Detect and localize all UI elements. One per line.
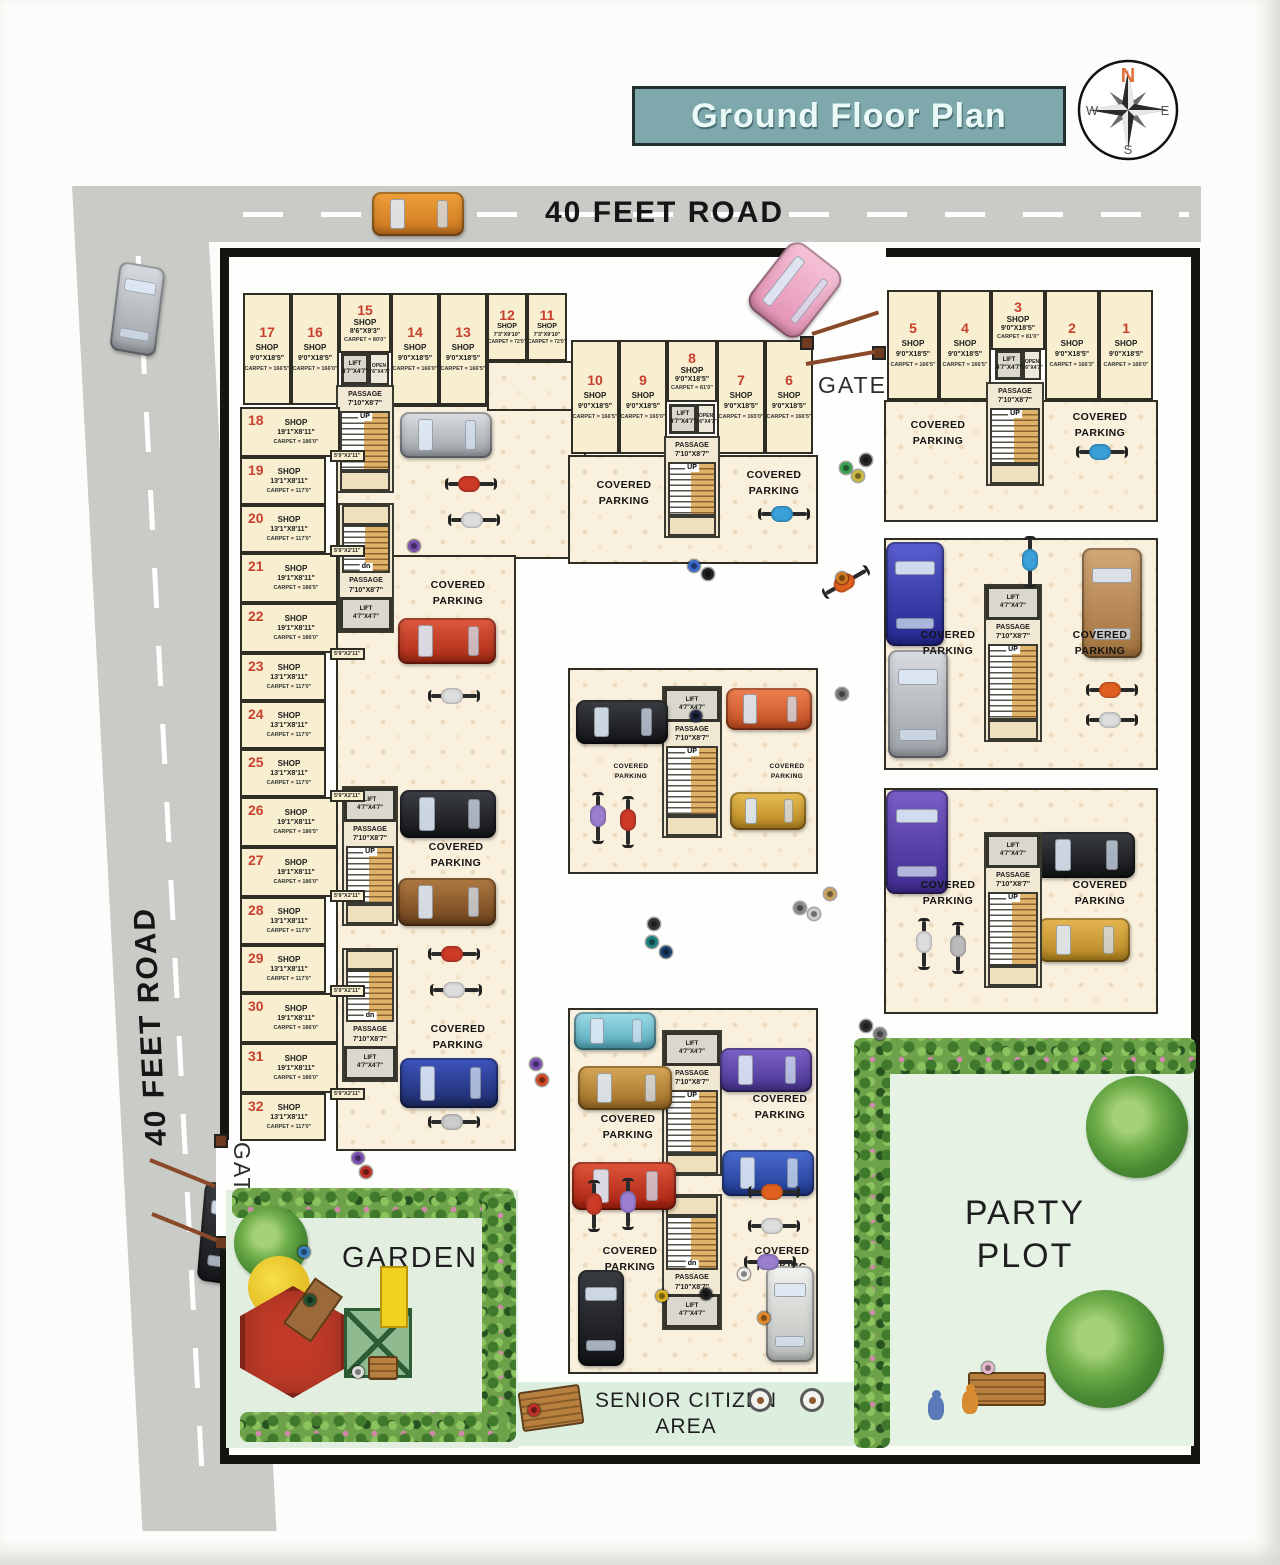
shop-13: 13SHOP9'0"X18'5"CARPET = 166'5" bbox=[439, 293, 487, 405]
road-top: 40 FEET ROAD bbox=[75, 186, 1201, 242]
shop-label: SHOP bbox=[273, 858, 318, 867]
car-icon bbox=[578, 1066, 672, 1110]
car-icon bbox=[726, 688, 812, 730]
shop-label: SHOP bbox=[273, 1004, 318, 1013]
gap-room-label: 5'9"X2'11" bbox=[330, 890, 365, 902]
shop-text: SHOP19'1"X8'11"CARPET = 186'5" bbox=[273, 564, 318, 592]
shop-carpet: CARPET = 186'0" bbox=[273, 635, 318, 641]
shop-carpet: CARPET = 72'0" bbox=[488, 340, 526, 346]
lift: LIFT4'7"X4'7" bbox=[340, 597, 392, 631]
car-icon bbox=[766, 1266, 814, 1362]
shop-dims: 13'1"X8'11" bbox=[267, 918, 312, 926]
gap-room-label: 5'9"X2'11" bbox=[330, 648, 365, 660]
stair-core: PASSAGE7'10"X8'7"UP bbox=[986, 382, 1044, 486]
lift: LIFT4'7"X4'7" bbox=[664, 1032, 720, 1066]
shop-dims: 19'1"X8'11" bbox=[273, 819, 318, 827]
shop-text: SHOP9'0"X18'5"CARPET = 166'0" bbox=[292, 343, 337, 373]
tree-icon bbox=[1046, 1290, 1164, 1408]
shop-dims: 9'0"X18'5" bbox=[942, 351, 987, 359]
shop-number: 16 bbox=[307, 325, 323, 339]
covered-parking-label: COVEREDPARKING bbox=[584, 1112, 672, 1144]
shop-15: 15SHOP8'6"X9'3"CARPET = 80'0" bbox=[339, 293, 391, 353]
car-icon bbox=[574, 1012, 656, 1050]
shop-7: 7SHOP9'0"X18'5"CARPET = 165'0" bbox=[717, 340, 765, 454]
covered-parking-label: COVEREDPARKING bbox=[904, 878, 992, 910]
staircase-up: UP bbox=[668, 462, 716, 516]
parking-word: PARKING bbox=[904, 894, 992, 910]
shop-10: 10SHOP9'0"X18'5"CARPET = 166'5" bbox=[571, 340, 619, 454]
passage-label: PASSAGE7'10"X8'7" bbox=[988, 384, 1042, 408]
shop-number: 4 bbox=[961, 321, 969, 335]
shop-number: 5 bbox=[909, 321, 917, 335]
scooter-icon bbox=[952, 922, 964, 974]
shop-text: SHOP13'1"X8'11"CARPET = 117'0" bbox=[267, 467, 312, 495]
person-icon bbox=[298, 1246, 310, 1258]
person-icon bbox=[360, 1166, 372, 1178]
car-icon bbox=[400, 412, 492, 458]
tree-icon bbox=[1086, 1076, 1188, 1178]
shop-30: 30SHOP19'1"X8'11"CARPET = 186'0" bbox=[240, 993, 340, 1043]
lift: LIFT4'7"X4'7" bbox=[995, 350, 1023, 380]
parking-word: PARKING bbox=[752, 772, 822, 782]
person-icon bbox=[836, 572, 848, 584]
shop-dims: 13'1"X8'11" bbox=[267, 1114, 312, 1122]
scooter-icon bbox=[592, 792, 604, 844]
compass-south: S bbox=[1124, 142, 1133, 157]
person-icon bbox=[836, 688, 848, 700]
shop-dims: 13'1"X8'11" bbox=[267, 966, 312, 974]
car-icon bbox=[888, 650, 948, 758]
shop-dims: 9'0"X18'5" bbox=[440, 355, 485, 363]
parking-word: PARKING bbox=[412, 856, 500, 872]
motorbike-icon bbox=[428, 948, 480, 960]
person-icon bbox=[536, 1074, 548, 1086]
car-icon bbox=[1038, 918, 1130, 962]
covered-word: COVERED bbox=[412, 840, 500, 856]
shop-label: SHOP bbox=[718, 391, 763, 400]
shop-text: SHOP13'1"X8'11"CARPET = 117'0" bbox=[267, 711, 312, 739]
stair-core: PASSAGE7'10"X8'7"UP bbox=[664, 436, 720, 538]
shop-number: 3 bbox=[1014, 300, 1022, 314]
shop-text: SHOP9'0"X18'5"CARPET = 166'5" bbox=[244, 343, 289, 373]
shop-dims: 13'1"X8'11" bbox=[267, 722, 312, 730]
shop-text: SHOP9'0"X18'5"CARPET = 81'0" bbox=[671, 366, 713, 392]
shop-label: SHOP bbox=[267, 515, 312, 524]
shop-text: SHOP13'1"X8'11"CARPET = 117'0" bbox=[267, 663, 312, 691]
shop-dims: 9'0"X18'5" bbox=[1049, 351, 1094, 359]
motorbike-icon bbox=[430, 984, 482, 996]
person-icon bbox=[660, 946, 672, 958]
bench-icon bbox=[968, 1372, 1046, 1406]
shop-carpet: CARPET = 117'0" bbox=[267, 536, 312, 542]
shop-label: SHOP bbox=[942, 339, 987, 348]
passage-label: PASSAGE7'10"X8'7" bbox=[986, 620, 1040, 644]
senior-line2: AREA bbox=[655, 1415, 716, 1438]
person-icon bbox=[700, 1288, 712, 1300]
shop-dims: 9'0"X18'5" bbox=[671, 376, 713, 384]
stair-landing bbox=[668, 516, 716, 536]
parking-word: PARKING bbox=[584, 1128, 672, 1144]
shop-20: 20SHOP13'1"X8'11"CARPET = 117'0" bbox=[240, 505, 326, 553]
shop-carpet: CARPET = 166'0" bbox=[292, 366, 337, 372]
covered-parking-label: COVEREDPARKING bbox=[1056, 628, 1144, 660]
shop-label: SHOP bbox=[572, 391, 617, 400]
covered-parking-label: COVEREDPARKING bbox=[904, 628, 992, 660]
car-icon bbox=[372, 192, 464, 236]
person-icon bbox=[738, 1268, 750, 1280]
scooter-icon bbox=[758, 508, 810, 520]
covered-word: COVERED bbox=[1056, 628, 1144, 644]
shop-number: 11 bbox=[540, 308, 555, 322]
parking-word: PARKING bbox=[894, 434, 982, 450]
shop-17: 17SHOP9'0"X18'5"CARPET = 166'5" bbox=[243, 293, 291, 405]
person-icon bbox=[824, 888, 836, 900]
person-icon bbox=[860, 454, 872, 466]
shop-label: SHOP bbox=[267, 907, 312, 916]
covered-word: COVERED bbox=[904, 628, 992, 644]
covered-word: COVERED bbox=[1056, 878, 1144, 894]
gate-label-top: GATE bbox=[818, 372, 887, 399]
shop-text: SHOP9'0"X18'5"CARPET = 165'0" bbox=[718, 391, 763, 421]
stair-landing bbox=[342, 505, 390, 525]
passage-label: PASSAGE7'10"X8'7" bbox=[340, 573, 392, 597]
motorbike-icon bbox=[448, 514, 500, 526]
shop-number: 29 bbox=[248, 951, 264, 965]
shop-text: SHOP13'1"X8'11"CARPET = 117'0" bbox=[267, 515, 312, 543]
shop-label: SHOP bbox=[267, 467, 312, 476]
passage-label: PASSAGE7'10"X8'7" bbox=[344, 1022, 396, 1046]
shop-text: SHOP9'0"X18'5"CARPET = 166'5" bbox=[766, 391, 811, 421]
shop-carpet: CARPET = 186'0" bbox=[273, 1025, 318, 1031]
passage-label: PASSAGE7'10"X8'7" bbox=[664, 722, 720, 746]
shop-label: SHOP bbox=[267, 759, 312, 768]
covered-word: COVERED bbox=[584, 1112, 672, 1128]
stair-core: LIFT4'7"X4'7"PASSAGE7'10"X8'7"UP bbox=[984, 584, 1042, 742]
shop-24: 24SHOP13'1"X8'11"CARPET = 117'0" bbox=[240, 701, 326, 749]
covered-word: COVERED bbox=[1056, 410, 1144, 426]
staircase-up: UP bbox=[988, 644, 1038, 720]
covered-parking-label: COVEREDPARKING bbox=[596, 762, 666, 783]
shop-number: 24 bbox=[248, 707, 264, 721]
shop-dims: 9'0"X18'5" bbox=[572, 403, 617, 411]
road-top-label: 40 FEET ROAD bbox=[545, 196, 784, 230]
shop-26: 26SHOP19'1"X8'11"CARPET = 186'5" bbox=[240, 797, 340, 847]
covered-word: COVERED bbox=[414, 1022, 502, 1038]
motorbike-icon bbox=[744, 1256, 796, 1268]
covered-parking-label: COVEREDPARKING bbox=[1056, 878, 1144, 910]
stair-core: dnPASSAGE7'10"X8'7"LIFT4'7"X4'7" bbox=[342, 948, 398, 1082]
shop-text: SHOP19'1"X8'11"CARPET = 186'0" bbox=[273, 614, 318, 642]
shop-text: SHOP9'0"X18'5"CARPET = 166'5" bbox=[890, 339, 935, 369]
shop-label: SHOP bbox=[1103, 339, 1148, 348]
shop-carpet: CARPET = 166'5" bbox=[890, 362, 935, 368]
covered-word: COVERED bbox=[894, 418, 982, 434]
gap-room-label: 5'9"X2'11" bbox=[330, 450, 365, 462]
car-icon bbox=[398, 618, 496, 664]
shop-text: SHOP13'1"X8'11"CARPET = 117'0" bbox=[267, 955, 312, 983]
shop-carpet: CARPET = 166'0" bbox=[392, 366, 437, 372]
stair-core: PASSAGE7'10"X8'7"UP bbox=[336, 385, 394, 493]
wheelchair-icon bbox=[748, 1388, 772, 1412]
stair-core: LIFT4'7"X4'7"PASSAGE7'10"X8'7"UP bbox=[342, 786, 398, 926]
staircase-up: UP bbox=[666, 1090, 718, 1154]
parking-word: PARKING bbox=[596, 772, 666, 782]
passage-label: PASSAGE7'10"X8'7" bbox=[986, 868, 1040, 892]
shop-16: 16SHOP9'0"X18'5"CARPET = 166'0" bbox=[291, 293, 339, 405]
person-icon bbox=[808, 908, 820, 920]
wheelchair-icon bbox=[800, 1388, 824, 1412]
shop-text: SHOP9'0"X18'5"CARPET = 81'0" bbox=[997, 315, 1039, 341]
shop-label: SHOP bbox=[488, 323, 526, 331]
covered-parking-label: COVEREDPARKING bbox=[414, 578, 502, 610]
shop-number: 15 bbox=[357, 303, 373, 317]
shop-carpet: CARPET = 186'0" bbox=[273, 439, 318, 445]
shop-number: 1 bbox=[1122, 321, 1130, 335]
shop-number: 10 bbox=[587, 373, 603, 387]
person-icon bbox=[688, 560, 700, 572]
page-title: Ground Floor Plan bbox=[632, 86, 1066, 146]
staircase-up: UP bbox=[988, 892, 1038, 966]
shop-carpet: CARPET = 117'0" bbox=[267, 928, 312, 934]
shop-carpet: CARPET = 80'0" bbox=[344, 337, 386, 343]
party-line2: PLOT bbox=[977, 1237, 1074, 1275]
motorbike-icon bbox=[748, 1186, 800, 1198]
covered-parking-label: COVEREDPARKING bbox=[894, 418, 982, 450]
shop-number: 8 bbox=[688, 351, 696, 365]
shop-text: SHOP9'0"X18'5"CARPET = 166'5" bbox=[942, 339, 987, 369]
shop-label: SHOP bbox=[344, 318, 386, 327]
stair-core: LIFT4'7"X4'7"PASSAGE7'10"X8'7"UP bbox=[662, 686, 722, 838]
motorbike-icon bbox=[445, 478, 497, 490]
parking-word: PARKING bbox=[1056, 644, 1144, 660]
covered-parking-label: COVEREDPARKING bbox=[730, 468, 818, 500]
shop-4: 4SHOP9'0"X18'5"CARPET = 166'5" bbox=[939, 290, 991, 400]
lift: LIFT4'7"X4'7" bbox=[986, 834, 1040, 868]
parking-word: PARKING bbox=[1056, 894, 1144, 910]
shop-dims: 13'1"X8'11" bbox=[267, 770, 312, 778]
shop-text: SHOP19'1"X8'11"CARPET = 186'0" bbox=[273, 1004, 318, 1032]
shop-label: SHOP bbox=[997, 315, 1039, 324]
shop-number: 31 bbox=[248, 1049, 264, 1063]
parking-word: PARKING bbox=[580, 494, 668, 510]
shop-number: 13 bbox=[455, 325, 471, 339]
staircase-up: UP bbox=[990, 408, 1040, 464]
motorbike-icon bbox=[1086, 714, 1138, 726]
car-icon bbox=[578, 1270, 624, 1366]
scooter-icon bbox=[588, 1180, 600, 1232]
shop-22: 22SHOP19'1"X8'11"CARPET = 186'0" bbox=[240, 603, 340, 653]
car-icon bbox=[400, 1058, 498, 1108]
motorbike-icon bbox=[748, 1220, 800, 1232]
scooter-icon bbox=[1024, 536, 1036, 588]
shop-number: 6 bbox=[785, 373, 793, 387]
shop-carpet: CARPET = 186'5" bbox=[273, 829, 318, 835]
shop-label: SHOP bbox=[273, 418, 318, 427]
motorbike-icon bbox=[1086, 684, 1138, 696]
shop-number: 2 bbox=[1068, 321, 1076, 335]
shop-carpet: CARPET = 72'0" bbox=[528, 340, 566, 346]
shop-text: SHOP7'3"X9'10"CARPET = 72'0" bbox=[528, 323, 566, 345]
shop-14: 14SHOP9'0"X18'5"CARPET = 166'0" bbox=[391, 293, 439, 405]
scooter-icon bbox=[622, 1178, 634, 1230]
open-shaft: OPEN2'6"X4'7" bbox=[1023, 350, 1041, 380]
car-icon bbox=[730, 792, 806, 830]
staircase-up: UP bbox=[666, 746, 718, 816]
shop-number: 23 bbox=[248, 659, 264, 673]
shop-18: 18SHOP19'1"X8'11"CARPET = 186'0" bbox=[240, 407, 340, 457]
shop-dims: 9'0"X18'5" bbox=[244, 355, 289, 363]
hedge bbox=[854, 1038, 1196, 1074]
car-icon bbox=[109, 261, 166, 358]
shop-dims: 19'1"X8'11" bbox=[273, 575, 318, 583]
shop-dims: 7'3"X9'10" bbox=[488, 332, 526, 338]
shop-text: SHOP13'1"X8'11"CARPET = 117'0" bbox=[267, 907, 312, 935]
shop-5: 5SHOP9'0"X18'5"CARPET = 166'5" bbox=[887, 290, 939, 400]
covered-word: COVERED bbox=[586, 1244, 674, 1260]
shop-number: 9 bbox=[639, 373, 647, 387]
shop-carpet: CARPET = 165'0" bbox=[718, 414, 763, 420]
parking-word: PARKING bbox=[1056, 426, 1144, 442]
shop-number: 19 bbox=[248, 463, 264, 477]
shop-number: 26 bbox=[248, 803, 264, 817]
shop-9: 9SHOP9'0"X18'5"CARPET = 165'0" bbox=[619, 340, 667, 454]
shop-label: SHOP bbox=[267, 711, 312, 720]
gap-room-label: 5'9"X2'11" bbox=[330, 545, 365, 557]
shop-number: 30 bbox=[248, 999, 264, 1013]
shop-text: SHOP9'0"X18'5"CARPET = 166'3" bbox=[1049, 339, 1094, 369]
person-icon bbox=[648, 918, 660, 930]
shop-text: SHOP8'6"X9'3"CARPET = 80'0" bbox=[344, 318, 386, 344]
covered-word: COVERED bbox=[596, 762, 666, 772]
stair-landing bbox=[988, 966, 1038, 986]
shop-carpet: CARPET = 117'0" bbox=[267, 976, 312, 982]
shop-label: SHOP bbox=[890, 339, 935, 348]
shop-27: 27SHOP19'1"X8'11"CARPET = 186'0" bbox=[240, 847, 340, 897]
shop-label: SHOP bbox=[273, 1054, 318, 1063]
shop-19: 19SHOP13'1"X8'11"CARPET = 117'0" bbox=[240, 457, 326, 505]
covered-word: COVERED bbox=[414, 578, 502, 594]
shop-25: 25SHOP13'1"X8'11"CARPET = 117'0" bbox=[240, 749, 326, 797]
stair-landing bbox=[990, 464, 1040, 484]
shop-text: SHOP9'0"X18'5"CARPET = 166'5" bbox=[572, 391, 617, 421]
parking-word: PARKING bbox=[904, 644, 992, 660]
shop-label: SHOP bbox=[273, 564, 318, 573]
shop-carpet: CARPET = 166'0" bbox=[1103, 362, 1148, 368]
shop-11: 11SHOP7'3"X9'10"CARPET = 72'0" bbox=[527, 293, 567, 361]
stair-landing bbox=[346, 950, 394, 970]
shop-label: SHOP bbox=[392, 343, 437, 352]
shop-carpet: CARPET = 117'0" bbox=[267, 780, 312, 786]
shop-text: SHOP13'1"X8'11"CARPET = 117'0" bbox=[267, 1103, 312, 1131]
person-icon bbox=[352, 1366, 364, 1378]
gate-post bbox=[800, 336, 814, 350]
compass-north: N bbox=[1121, 65, 1135, 87]
shop-text: SHOP19'1"X8'11"CARPET = 186'0" bbox=[273, 418, 318, 446]
lift: LIFT4'7"X4'7" bbox=[344, 1046, 396, 1080]
dog-icon bbox=[928, 1396, 944, 1420]
parking-word: PARKING bbox=[414, 594, 502, 610]
car-icon bbox=[720, 1048, 812, 1092]
shop-6: 6SHOP9'0"X18'5"CARPET = 166'5" bbox=[765, 340, 813, 454]
parking-word: PARKING bbox=[414, 1038, 502, 1054]
lift: LIFT4'7"X4'7" bbox=[664, 1294, 720, 1328]
lift: LIFT4'7"X4'7" bbox=[986, 586, 1040, 620]
shop-label: SHOP bbox=[440, 343, 485, 352]
shop-dims: 13'1"X8'11" bbox=[267, 478, 312, 486]
shop-dims: 9'0"X18'5" bbox=[292, 355, 337, 363]
stair-landing bbox=[666, 816, 718, 836]
picnic-table-icon bbox=[368, 1356, 398, 1380]
covered-parking-label: COVEREDPARKING bbox=[412, 840, 500, 872]
covered-parking-label: COVEREDPARKING bbox=[1056, 410, 1144, 442]
shop-text: SHOP19'1"X8'11"CARPET = 186'0" bbox=[273, 858, 318, 886]
compass-west: W bbox=[1086, 103, 1099, 118]
shop-dims: 19'1"X8'11" bbox=[273, 1015, 318, 1023]
car-icon bbox=[400, 790, 496, 838]
open-shaft: OPEN2'6"X4'7" bbox=[697, 404, 715, 434]
person-icon bbox=[702, 568, 714, 580]
shop-dims: 19'1"X8'11" bbox=[273, 625, 318, 633]
shop-text: SHOP13'1"X8'11"CARPET = 117'0" bbox=[267, 759, 312, 787]
motorbike-icon bbox=[428, 1116, 480, 1128]
shop-carpet: CARPET = 166'5" bbox=[244, 366, 289, 372]
shop-number: 12 bbox=[499, 308, 515, 322]
shop-dims: 19'1"X8'11" bbox=[273, 429, 318, 437]
lift: LIFT4'7"X4'7" bbox=[669, 404, 697, 434]
person-icon bbox=[874, 1028, 886, 1040]
shop-label: SHOP bbox=[1049, 339, 1094, 348]
shop-carpet: CARPET = 81'0" bbox=[671, 385, 713, 391]
shop-8: 8SHOP9'0"X18'5"CARPET = 81'0" bbox=[667, 340, 717, 402]
shop-label: SHOP bbox=[273, 614, 318, 623]
person-icon bbox=[794, 902, 806, 914]
shop-text: SHOP7'3"X9'10"CARPET = 72'0" bbox=[488, 323, 526, 345]
shop-carpet: CARPET = 117'0" bbox=[267, 732, 312, 738]
person-icon bbox=[982, 1362, 994, 1374]
scanned-floor-plan-page: Ground Floor Plan N E S W 40 FEET ROAD 4… bbox=[0, 0, 1280, 1565]
slide-icon bbox=[380, 1266, 408, 1328]
hedge bbox=[854, 1038, 890, 1448]
shop-23: 23SHOP13'1"X8'11"CARPET = 117'0" bbox=[240, 653, 326, 701]
car-icon bbox=[1035, 832, 1135, 878]
gap-room-label: 5'9"X2'11" bbox=[330, 790, 365, 802]
shop-21: 21SHOP19'1"X8'11"CARPET = 186'5" bbox=[240, 553, 340, 603]
road-left-label: 40 FEET ROAD bbox=[109, 546, 174, 1146]
shop-dims: 9'0"X18'5" bbox=[620, 403, 665, 411]
car-icon bbox=[398, 878, 496, 926]
gate-post bbox=[214, 1134, 228, 1148]
stair-landing bbox=[340, 471, 390, 491]
passage-label: PASSAGE7'10"X8'7" bbox=[344, 822, 396, 846]
shop-dims: 8'6"X9'3" bbox=[344, 328, 386, 336]
shop-carpet: CARPET = 81'0" bbox=[997, 334, 1039, 340]
shop-number: 7 bbox=[737, 373, 745, 387]
scooter-icon bbox=[1076, 446, 1128, 458]
shop-carpet: CARPET = 117'0" bbox=[267, 684, 312, 690]
person-icon bbox=[304, 1294, 316, 1306]
gap-room-label: 5'9"X2'11" bbox=[330, 1088, 365, 1100]
stair-core: LIFT4'7"X4'7"PASSAGE7'10"X8'7"UP bbox=[984, 832, 1042, 988]
shop-dims: 13'1"X8'11" bbox=[267, 526, 312, 534]
shop-31: 31SHOP19'1"X8'11"CARPET = 186'0" bbox=[240, 1043, 340, 1093]
shop-label: SHOP bbox=[273, 808, 318, 817]
person-icon bbox=[860, 1020, 872, 1032]
shop-carpet: CARPET = 166'3" bbox=[1049, 362, 1094, 368]
shop-text: SHOP9'0"X18'5"CARPET = 166'0" bbox=[1103, 339, 1148, 369]
shop-dims: 9'0"X18'5" bbox=[766, 403, 811, 411]
shop-12: 12SHOP7'3"X9'10"CARPET = 72'0" bbox=[487, 293, 527, 361]
covered-word: COVERED bbox=[752, 762, 822, 772]
